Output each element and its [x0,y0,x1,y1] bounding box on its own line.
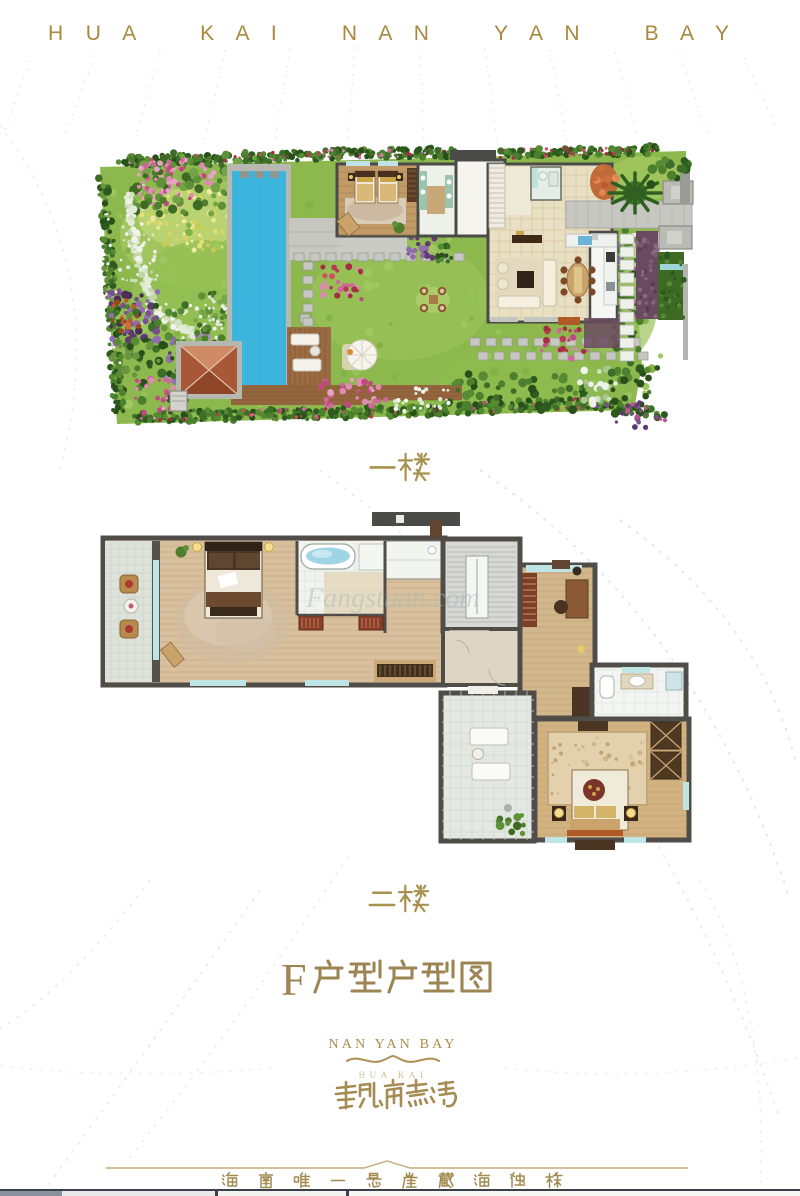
svg-text:Fangstuan.com: Fangstuan.com [305,583,479,614]
svg-text:HUA KAI: HUA KAI [359,1070,428,1080]
svg-text:NAN YAN BAY: NAN YAN BAY [328,1037,457,1052]
svg-text:H U A K A I N A N Y A: H U A K A I N A N Y A N B A Y [48,22,738,45]
svg-text:F: F [281,954,307,1005]
